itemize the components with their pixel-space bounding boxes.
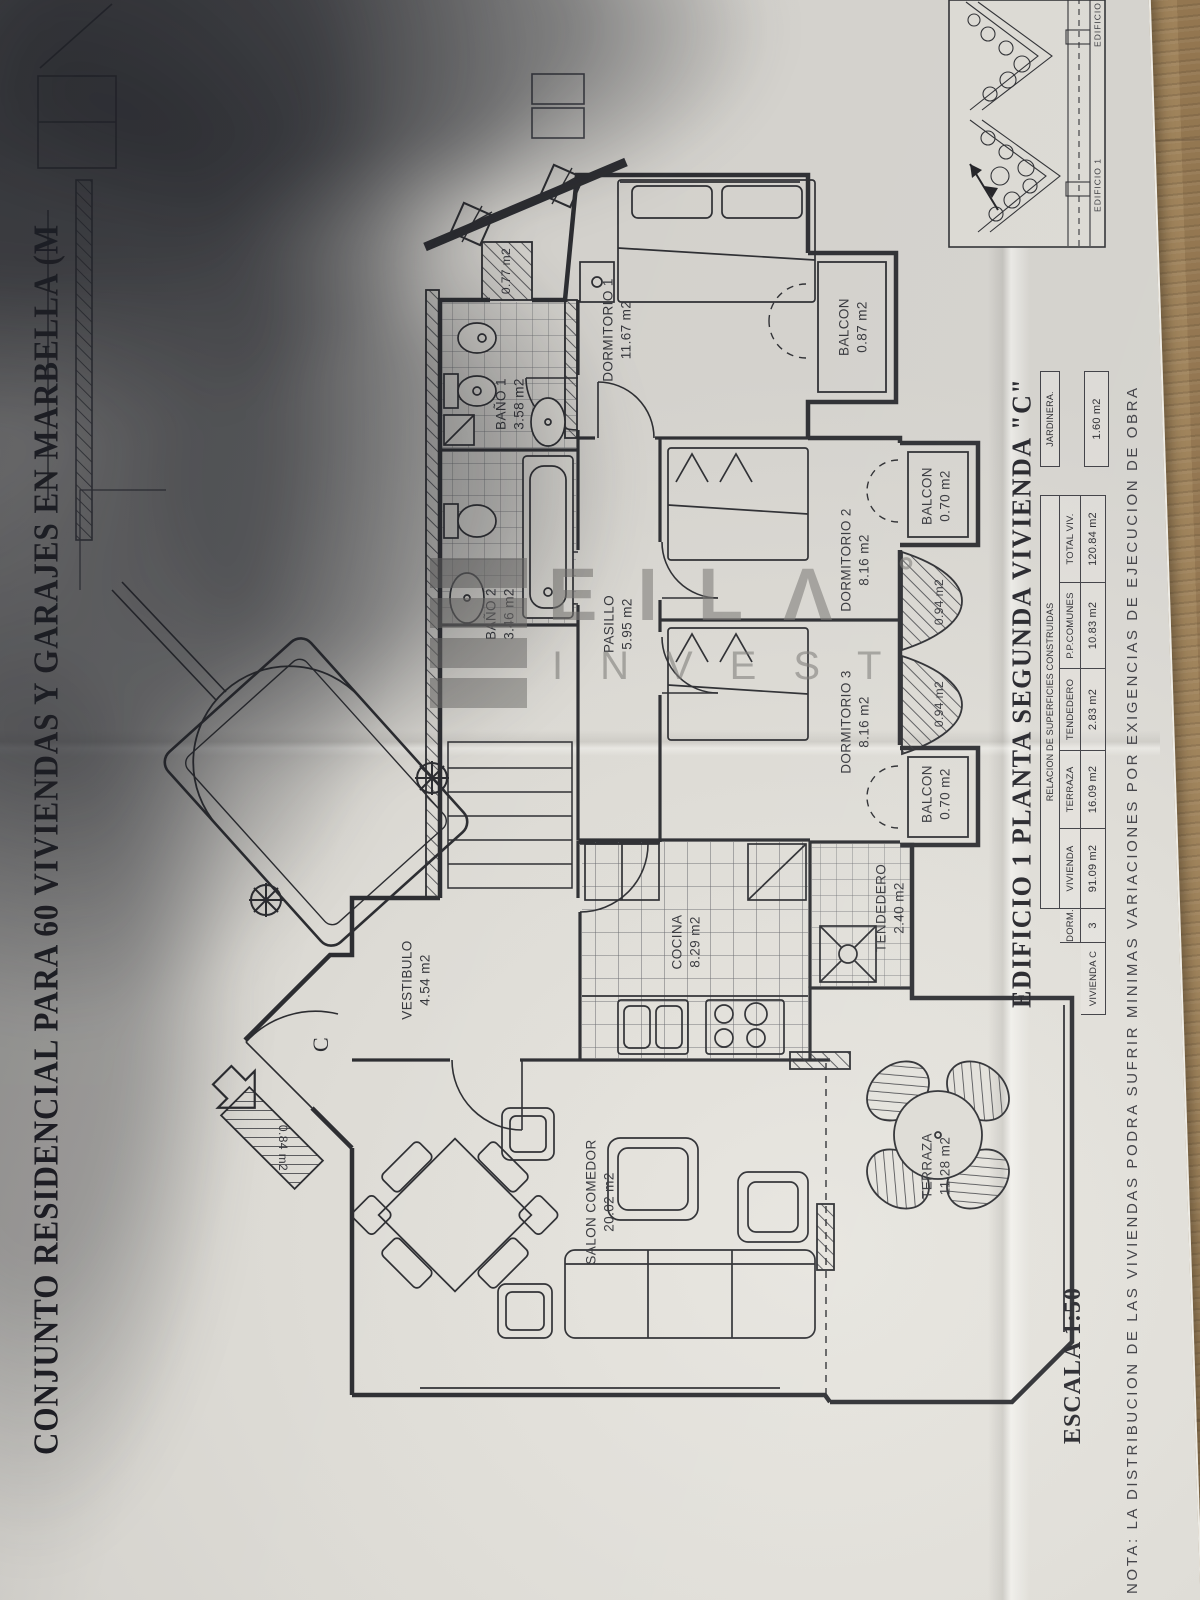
room-label-balcon-2: BALCON0.70 m2 bbox=[918, 467, 953, 525]
table-col-totalviv: TOTAL VIV. bbox=[1060, 495, 1081, 583]
photo-of-floor-plan: DORMITORIO 111.67 m2 BALCON0.87 m2 DORMI… bbox=[0, 0, 1200, 1600]
living-room-furniture bbox=[342, 1102, 815, 1338]
planter-label-094a: 0.94 m2 bbox=[932, 579, 948, 625]
watermark-subtext: INVEST bbox=[552, 644, 918, 689]
room-label-balcon-1: BALCON0.87 m2 bbox=[835, 298, 870, 356]
table-col-jardinera: JARDINERA. bbox=[1040, 371, 1060, 467]
site-map-label-edificio-2: EDIFICIO 2 bbox=[1092, 0, 1103, 47]
planter-label-077: 0.77 m2 bbox=[499, 248, 515, 294]
table-col-vivienda: VIVIENDA bbox=[1060, 829, 1081, 909]
room-label-salon-comedor: SALON COMEDOR20.02 m2 bbox=[582, 1139, 617, 1264]
table-col-dorm: DORM. bbox=[1060, 909, 1081, 943]
table-value-terraza: 16.09 m2 bbox=[1081, 751, 1106, 829]
room-label-cocina: COCINA8.29 m2 bbox=[668, 915, 703, 970]
plan-title: EDIFICIO 1 PLANTA SEGUNDA VIVIENDA "C" bbox=[1006, 433, 1038, 1008]
scale-label: ESCALA 1:50 bbox=[1060, 1287, 1087, 1444]
table-value-vivienda: 91.09 m2 bbox=[1081, 829, 1106, 909]
table-col-tendedero: TENDEDERO bbox=[1060, 669, 1081, 751]
document-title: CONJUNTO RESIDENCIAL PARA 60 VIVIENDAS Y… bbox=[26, 0, 66, 1455]
plan-page: DORMITORIO 111.67 m2 BALCON0.87 m2 DORMI… bbox=[20, 0, 1160, 1600]
site-map-label-edificio-1: EDIFICIO 1 bbox=[1092, 158, 1103, 212]
note-text: NOTA: LA DISTRIBUCION DE LAS VIVIENDAS P… bbox=[1124, 14, 1141, 1594]
room-label-dormitorio-1: DORMITORIO 111.67 m2 bbox=[599, 278, 634, 382]
table-row-label: VIVIENDA C bbox=[1081, 943, 1106, 1015]
entry-door-label: C bbox=[308, 1037, 334, 1052]
watermark-logo-icon bbox=[430, 558, 527, 708]
table-value-ppcomunes: 10.83 m2 bbox=[1081, 583, 1106, 669]
table-col-ppcomunes: P.P.COMUNES bbox=[1060, 583, 1081, 669]
table-value-dorm: 3 bbox=[1081, 909, 1106, 943]
site-map bbox=[949, 0, 1105, 247]
room-label-terraza: TERRAZA11.28 m2 bbox=[918, 1133, 953, 1199]
planter-label-084: 0.84 m2 bbox=[274, 1125, 290, 1171]
pergola-wall bbox=[425, 162, 626, 247]
table-value-totalviv: 120.84 m2 bbox=[1081, 495, 1106, 583]
planter-label-094b: 0.94 m2 bbox=[932, 681, 948, 727]
watermark-degree: ° bbox=[898, 550, 914, 595]
table-value-tendedero: 2.83 m2 bbox=[1081, 669, 1106, 751]
table-value-jardinera: 1.60 m2 bbox=[1084, 371, 1109, 467]
table-col-terraza: TERRAZA bbox=[1060, 751, 1081, 829]
floor-plan-drawing bbox=[20, 0, 1160, 1600]
watermark-brand: EILΛ bbox=[548, 552, 872, 637]
room-label-vestibulo: VESTIBULO4.54 m2 bbox=[398, 940, 433, 1019]
room-label-balcon-3: BALCON0.70 m2 bbox=[918, 765, 953, 823]
room-label-bano-1: BAÑO 13.58 m2 bbox=[492, 378, 527, 430]
table-merged-header: RELACION DE SUPERFICIES CONSTRUIDAS bbox=[1040, 495, 1060, 909]
room-label-tendedero: TENDEDERO2.40 m2 bbox=[872, 864, 907, 952]
